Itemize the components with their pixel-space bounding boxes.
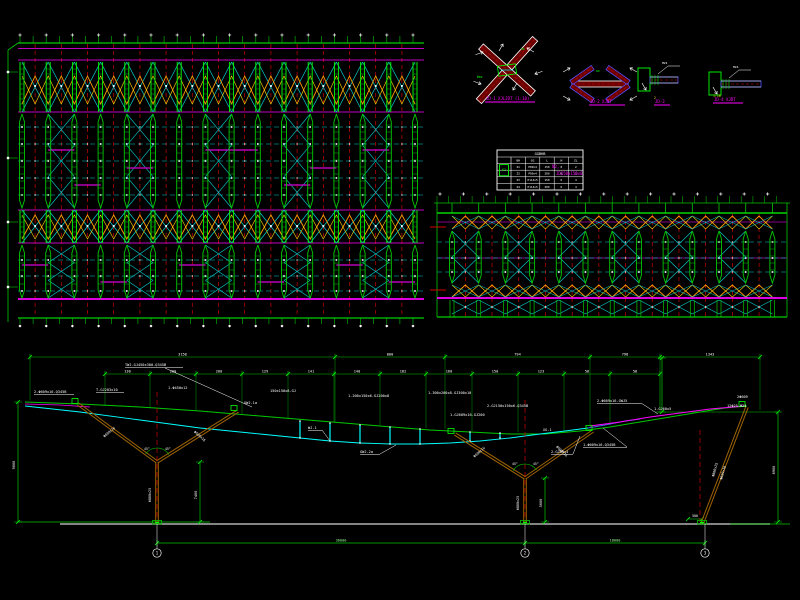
structural-cad-drawing: 60Φ89JD-1 XJLJDT (1:10)60JD-2 XJDTM242JD… bbox=[0, 0, 800, 600]
svg-text:JD-2 XJDT: JD-2 XJDT bbox=[590, 99, 612, 104]
svg-text:7400: 7400 bbox=[194, 491, 198, 500]
svg-text:1-Φ450x12: 1-Φ450x12 bbox=[168, 386, 187, 390]
svg-text:1-GJ609x16-GJ200: 1-GJ609x16-GJ200 bbox=[450, 413, 485, 417]
svg-text:45°: 45° bbox=[165, 447, 171, 451]
svg-text:12Φ25-M24: 12Φ25-M24 bbox=[727, 404, 746, 408]
svg-text:Z1: Z1 bbox=[517, 165, 521, 169]
svg-text:L: L bbox=[546, 158, 548, 162]
svg-text:2: 2 bbox=[575, 165, 577, 169]
svg-text:182: 182 bbox=[400, 370, 407, 374]
svg-text:150: 150 bbox=[544, 178, 549, 182]
svg-text:JD150x150x8: JD150x150x8 bbox=[556, 171, 583, 176]
svg-text:2-GJ150x150x6-Q345B: 2-GJ150x150x6-Q345B bbox=[487, 404, 528, 408]
svg-text:2: 2 bbox=[524, 551, 527, 556]
svg-text:1-200x150x6-GJ200x8: 1-200x150x6-GJ200x8 bbox=[348, 394, 389, 398]
svg-text:1343: 1343 bbox=[706, 353, 715, 357]
svg-text:Z4: Z4 bbox=[517, 185, 521, 189]
detail-d1: 60Φ89JD-1 XJLJDT (1:10) bbox=[473, 36, 543, 103]
detail-d2: 60JD-2 XJDT bbox=[562, 65, 637, 105]
svg-text:130: 130 bbox=[124, 370, 131, 374]
svg-text:1: 1 bbox=[156, 551, 159, 556]
svg-text:500: 500 bbox=[692, 514, 698, 518]
svg-text:GWJ-2a: GWJ-2a bbox=[360, 450, 373, 454]
svg-text:TWJ-GJ450x300-Q345B: TWJ-GJ450x300-Q345B bbox=[125, 363, 166, 367]
svg-text:800: 800 bbox=[387, 353, 394, 357]
svg-text:Φ800x25: Φ800x25 bbox=[148, 488, 152, 502]
svg-text:4: 4 bbox=[575, 185, 577, 189]
svg-text:1-300x200x8-GJ300x10: 1-300x200x8-GJ300x10 bbox=[428, 391, 471, 395]
svg-text:5600: 5600 bbox=[539, 499, 543, 508]
svg-text:P89x4: P89x4 bbox=[528, 172, 537, 176]
svg-text:JD-1 XJLJDT (1:10): JD-1 XJLJDT (1:10) bbox=[486, 96, 529, 101]
svg-text:140: 140 bbox=[354, 370, 361, 374]
svg-text:9000: 9000 bbox=[12, 461, 16, 470]
svg-text:Φ609x16: Φ609x16 bbox=[719, 465, 727, 480]
svg-text:6: 6 bbox=[561, 185, 563, 189]
svg-text:GGBHB: GGBHB bbox=[535, 152, 546, 156]
detail-d4: M241:10JD-4 XJDT bbox=[709, 65, 761, 104]
svg-text:150: 150 bbox=[544, 165, 549, 169]
svg-text:3: 3 bbox=[704, 551, 707, 556]
svg-text:GG: GG bbox=[531, 158, 535, 162]
svg-text:P114x5: P114x5 bbox=[528, 178, 538, 182]
svg-text:60: 60 bbox=[596, 69, 600, 73]
roof-plan-left bbox=[7, 33, 424, 327]
svg-text:N2,: N2, bbox=[552, 164, 559, 169]
svg-text:1-GJ60x5: 1-GJ60x5 bbox=[654, 407, 671, 411]
svg-text:K2: K2 bbox=[502, 168, 506, 172]
svg-text:798: 798 bbox=[622, 353, 629, 357]
svg-text:P89x4: P89x4 bbox=[528, 165, 537, 169]
svg-text:M24: M24 bbox=[662, 61, 668, 65]
svg-text:4: 4 bbox=[575, 178, 577, 182]
svg-text:129: 129 bbox=[262, 370, 269, 374]
material-schedule-table: GGBHBBHGGLNZLZ1P89x415082Z2P89x420082Z3P… bbox=[497, 150, 583, 190]
svg-text:8: 8 bbox=[561, 165, 563, 169]
svg-text:Φ800x25: Φ800x25 bbox=[516, 496, 520, 510]
svg-text:160: 160 bbox=[446, 370, 453, 374]
svg-text:2-Φ609x16-Q345B: 2-Φ609x16-Q345B bbox=[34, 390, 66, 394]
svg-text:M24: M24 bbox=[733, 65, 739, 69]
svg-text:Φ800x25: Φ800x25 bbox=[711, 462, 719, 477]
svg-text:200: 200 bbox=[544, 172, 549, 176]
svg-text:WJ-1: WJ-1 bbox=[308, 426, 317, 430]
svg-text:JD-4 XJDT: JD-4 XJDT bbox=[714, 97, 736, 102]
svg-text:200: 200 bbox=[216, 370, 223, 374]
svg-text:Z2: Z2 bbox=[517, 172, 521, 176]
svg-text:141: 141 bbox=[308, 370, 315, 374]
svg-text:1-Φ609x16-Q345B: 1-Φ609x16-Q345B bbox=[583, 443, 615, 447]
svg-text:150x150x8-GJ: 150x150x8-GJ bbox=[270, 389, 296, 393]
svg-text:36000: 36000 bbox=[336, 539, 347, 543]
svg-text:XG-1: XG-1 bbox=[543, 428, 552, 432]
cad-viewport: 60Φ89JD-1 XJLJDT (1:10)60JD-2 XJDTM242JD… bbox=[0, 0, 800, 600]
svg-text:JD-3: JD-3 bbox=[655, 99, 665, 104]
svg-text:123: 123 bbox=[538, 370, 545, 374]
svg-text:45°: 45° bbox=[533, 462, 539, 466]
svg-text:T-GJ203x10: T-GJ203x10 bbox=[96, 388, 118, 392]
svg-text:2Φ609: 2Φ609 bbox=[737, 395, 748, 399]
svg-text:8900: 8900 bbox=[772, 466, 776, 475]
svg-text:ZL: ZL bbox=[574, 158, 578, 162]
joint-details: 60Φ89JD-1 XJLJDT (1:10)60JD-2 XJDTM242JD… bbox=[473, 36, 761, 105]
svg-text:45°: 45° bbox=[144, 447, 150, 451]
svg-text:45°: 45° bbox=[512, 462, 518, 466]
svg-text:58: 58 bbox=[585, 370, 589, 374]
svg-text:150: 150 bbox=[492, 370, 499, 374]
svg-text:794: 794 bbox=[514, 353, 521, 357]
detail-d3: M242JD-3 bbox=[638, 61, 680, 106]
svg-text:60: 60 bbox=[521, 47, 525, 51]
svg-text:3158: 3158 bbox=[178, 353, 187, 357]
svg-text:200: 200 bbox=[544, 185, 549, 189]
roof-plan-right bbox=[430, 192, 790, 317]
svg-text:Φ89: Φ89 bbox=[477, 75, 483, 79]
svg-text:18000: 18000 bbox=[610, 539, 621, 543]
svg-text:6: 6 bbox=[561, 178, 563, 182]
svg-text:58: 58 bbox=[633, 370, 637, 374]
elevation-section: 3158800794798134313020020012914114018216… bbox=[12, 353, 790, 558]
svg-text:Z3: Z3 bbox=[517, 178, 521, 182]
svg-text:2-Φ609x16-GWJ5: 2-Φ609x16-GWJ5 bbox=[597, 399, 627, 403]
svg-text:P114x5: P114x5 bbox=[528, 185, 538, 189]
svg-text:N: N bbox=[560, 158, 562, 162]
svg-text:BH: BH bbox=[516, 158, 520, 162]
